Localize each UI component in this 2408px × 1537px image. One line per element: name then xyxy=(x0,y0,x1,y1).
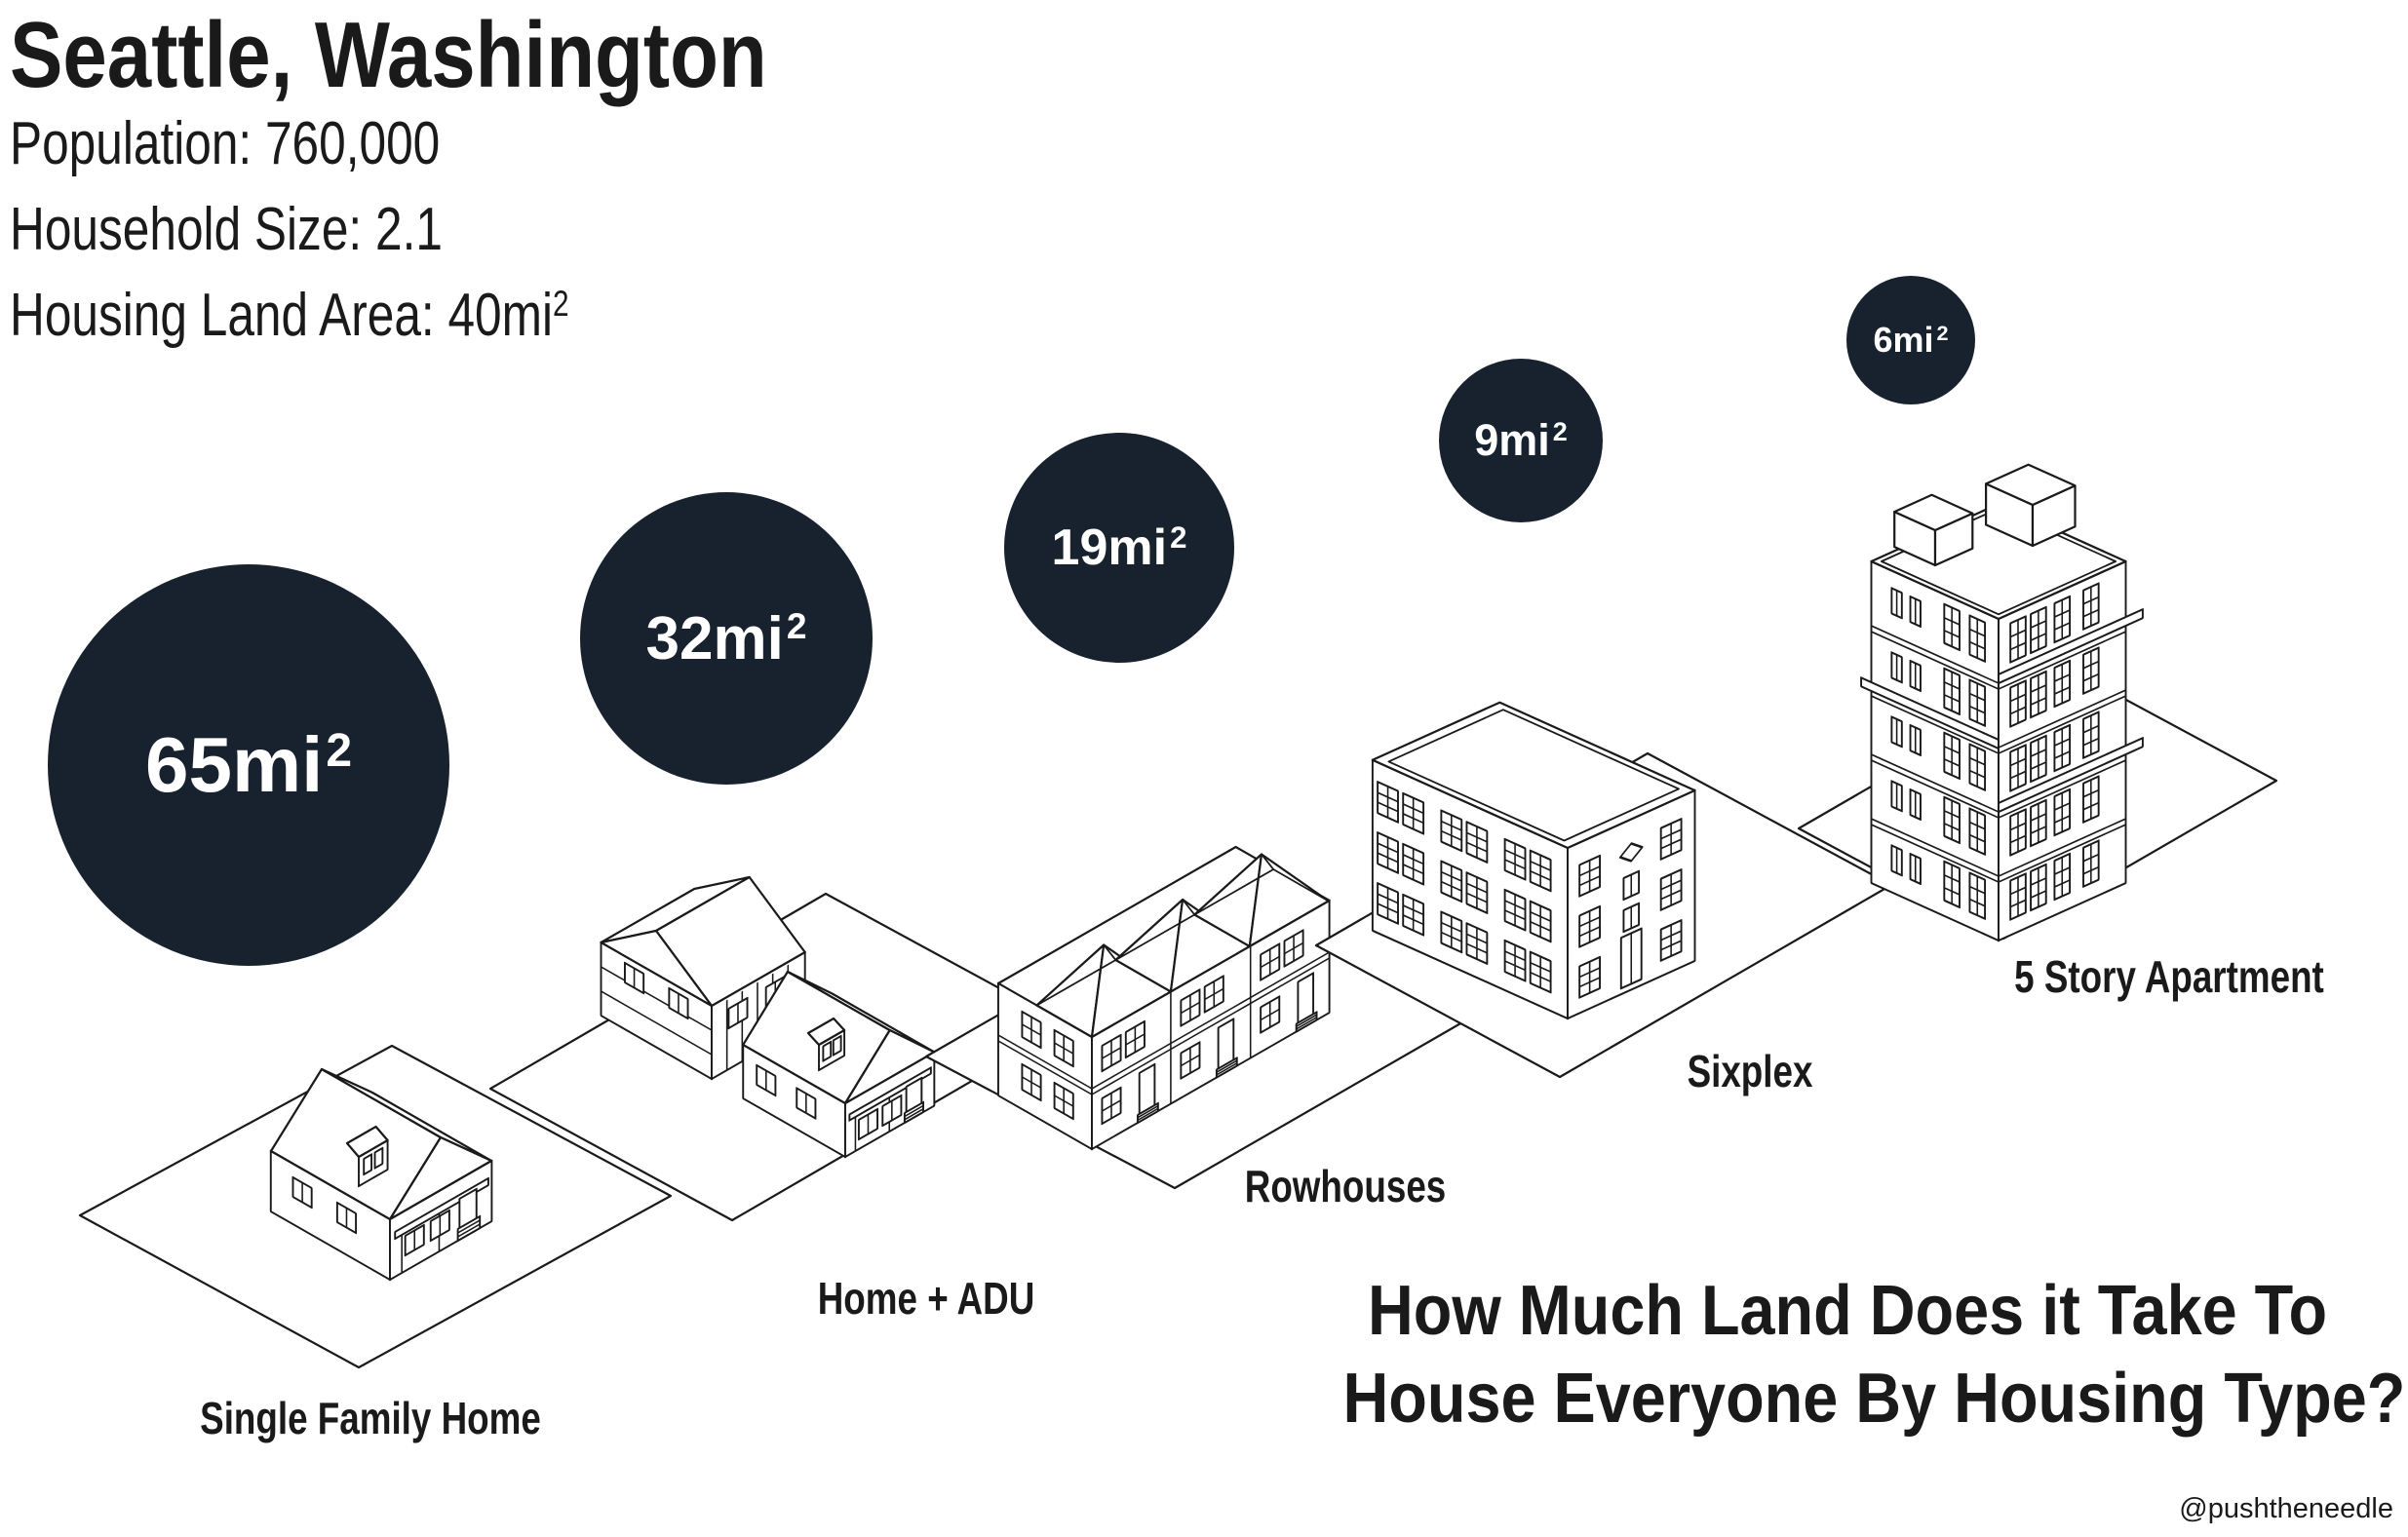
bubble-single-family-home: 65mi2 xyxy=(48,564,449,966)
population-line: Population: 760,000 xyxy=(10,109,440,178)
label-sixplex: Sixplex xyxy=(1590,1045,1910,1097)
bubble-value: 32mi2 xyxy=(645,604,806,673)
question-title: How Much Land Does it Take To House Ever… xyxy=(1287,1267,2408,1442)
header-block: Seattle, Washington xyxy=(10,2,901,109)
five-story-apartment-illustration xyxy=(1789,409,2286,994)
bubble-five-story-apartment: 6mi2 xyxy=(1846,276,1975,404)
label-five-story-apartment: 5 Story Apartment xyxy=(1986,950,2352,1003)
bubble-value: 9mi2 xyxy=(1474,415,1568,466)
label-home-plus-adu: Home + ADU xyxy=(731,1272,1121,1325)
land-area-superscript: 2 xyxy=(553,283,569,324)
land-area-text: Housing Land Area: 40mi xyxy=(10,282,553,349)
bubble-home-plus-adu: 32mi2 xyxy=(580,492,873,785)
bubble-rowhouses: 19mi2 xyxy=(1004,433,1234,663)
city-title: Seattle, Washington xyxy=(10,2,767,109)
land-area-line: Housing Land Area: 40mi2 xyxy=(10,281,569,350)
household-size-line: Household Size: 2.1 xyxy=(10,195,443,264)
bubble-value: 19mi2 xyxy=(1052,519,1187,577)
label-rowhouses: Rowhouses xyxy=(1166,1160,1525,1212)
bubble-value: 65mi2 xyxy=(145,720,352,810)
label-single-family-home: Single Family Home xyxy=(168,1392,573,1444)
question-line-2: House Everyone By Housing Type? xyxy=(1343,1355,2352,1442)
credit-handle: @pushtheneedle xyxy=(2179,1493,2393,1525)
bubble-sixplex: 9mi2 xyxy=(1439,359,1603,522)
infographic-canvas: Seattle, Washington Population: 760,000 … xyxy=(0,0,2408,1537)
question-line-1: How Much Land Does it Take To xyxy=(1343,1267,2352,1355)
bubble-value: 6mi2 xyxy=(1873,320,1948,361)
